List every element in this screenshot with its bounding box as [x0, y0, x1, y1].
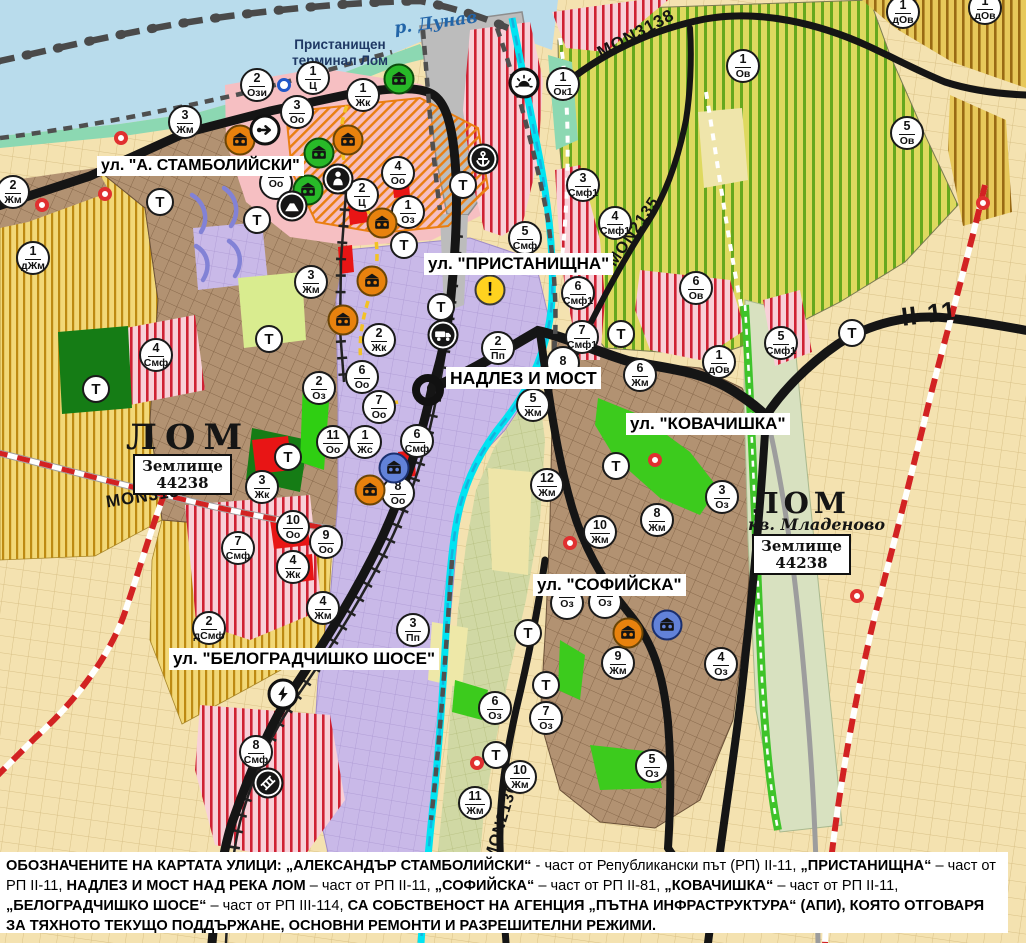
footer-text-segment: – част от РП III-114,	[206, 898, 347, 914]
footer-text-segment: „ПРИСТАНИЩНА“	[800, 858, 931, 874]
zoning-map	[0, 0, 1026, 943]
footer-text-segment: „КОВАЧИШКА“	[664, 878, 773, 894]
footer-text-segment: – част от РП II-11,	[306, 878, 435, 894]
footer-text-segment: - част от Републикански път (РП) II-11,	[531, 858, 800, 874]
footer-text-segment: НАДЛЕЗ И МОСТ НАД РЕКА ЛОМ	[67, 878, 306, 894]
footer-text-segment: – част от РП II-11,	[773, 878, 898, 894]
footer-text-segment: – част от РП II-81,	[534, 878, 664, 894]
map-footer-note: ОБОЗНАЧЕНИТЕ НА КАРТАТА УЛИЦИ: „АЛЕКСАНД…	[0, 852, 1008, 933]
map-canvas: MON3139MON3138MON2135MON2136II-11 р. Дун…	[0, 0, 1026, 943]
footer-text-segment: „БЕЛОГРАДЧИШКО ШОСЕ“	[6, 898, 206, 914]
footer-text-segment: ОБОЗНАЧЕНИТЕ НА КАРТАТА УЛИЦИ: „АЛЕКСАНД…	[6, 858, 531, 874]
footer-text-segment: „СОФИЙСКА“	[435, 878, 535, 894]
